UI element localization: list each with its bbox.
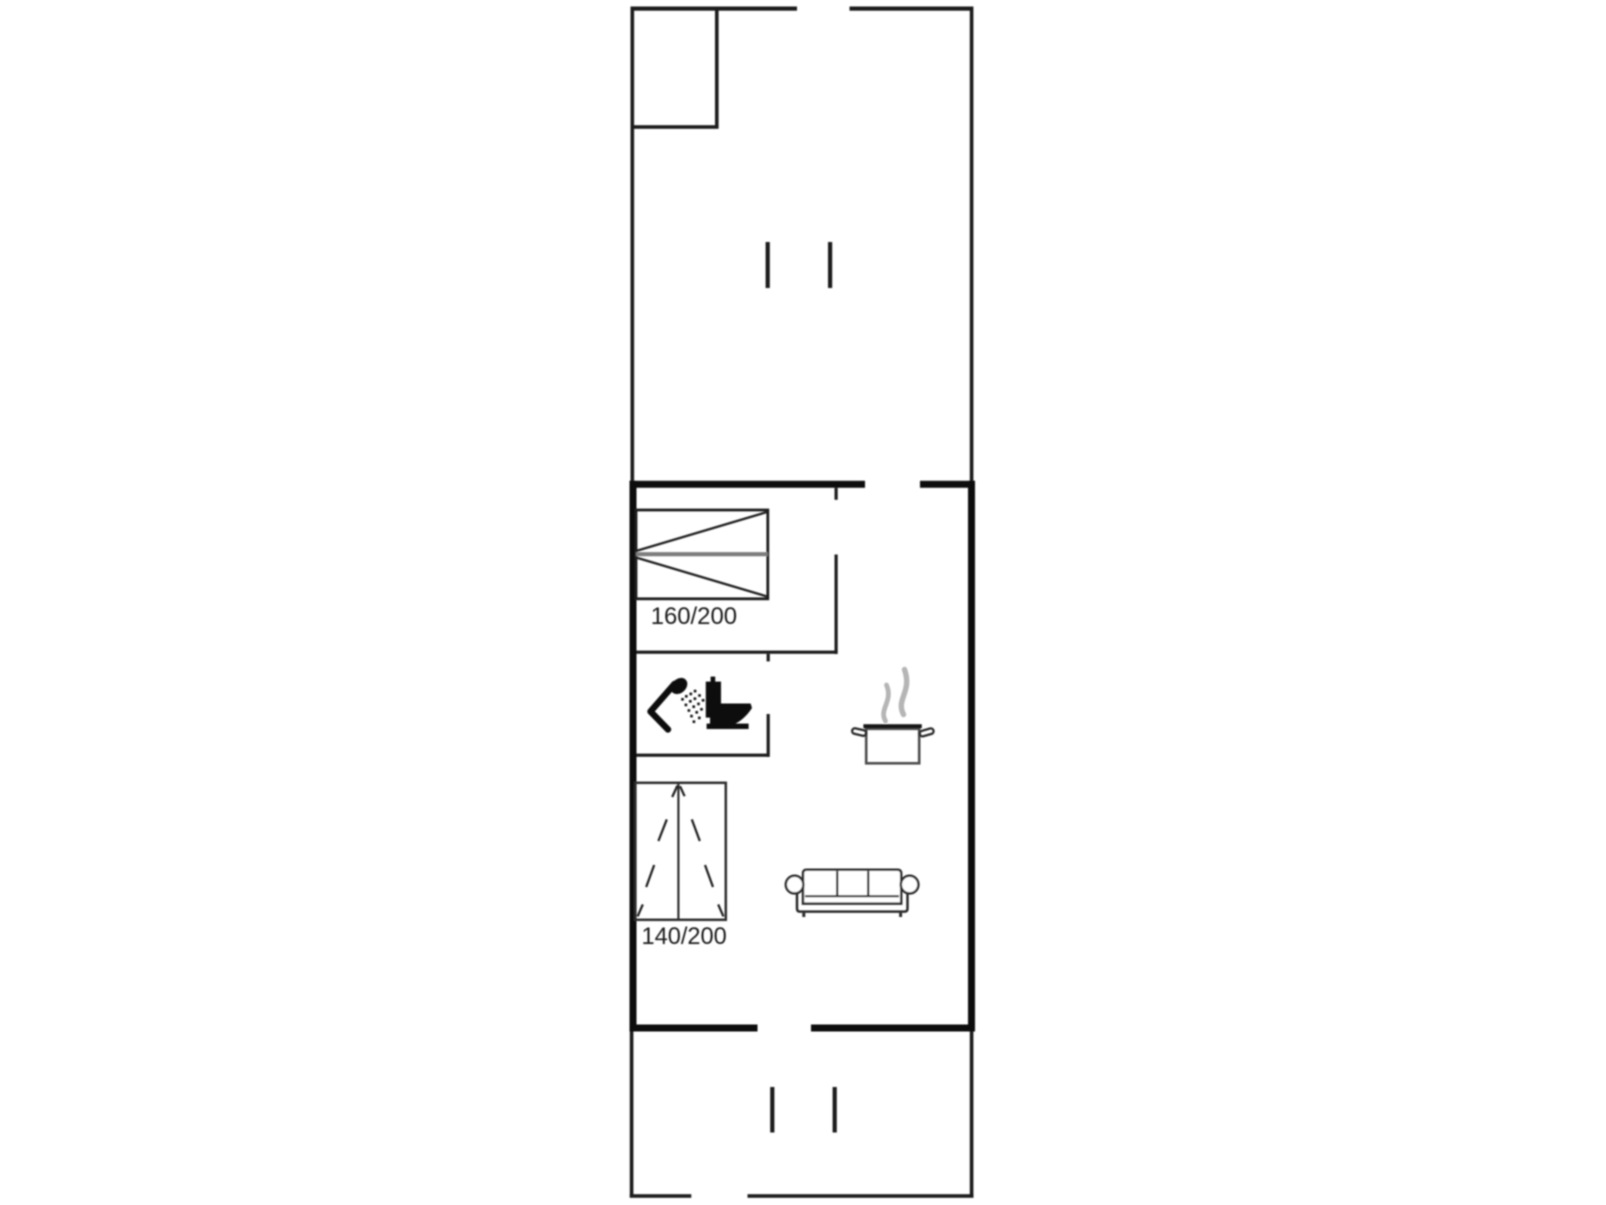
svg-text:140/200: 140/200 <box>642 924 727 950</box>
svg-text:160/200: 160/200 <box>651 603 737 630</box>
